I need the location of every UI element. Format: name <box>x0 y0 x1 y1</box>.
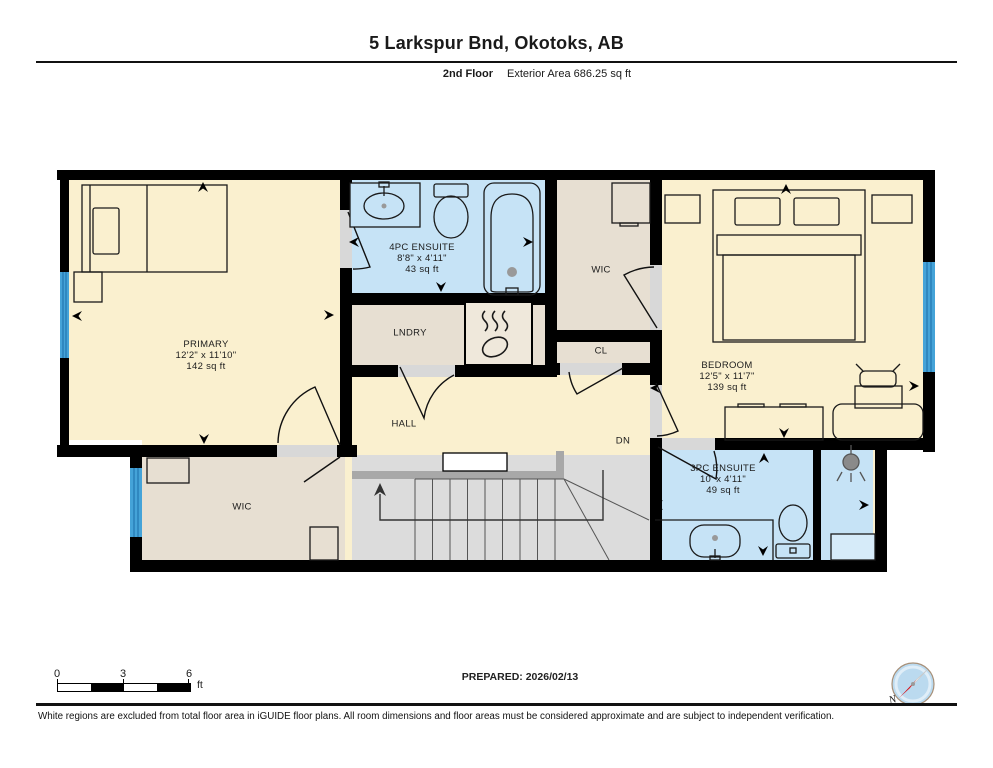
window-primary-left <box>60 272 69 358</box>
room-label-wic-upper: WIC <box>591 266 610 277</box>
room-label-hall: HALL <box>392 420 417 431</box>
footer-divider <box>36 703 957 706</box>
floor-plan-page: 5 Larkspur Bnd, Okotoks, AB 2nd FloorExt… <box>0 0 993 768</box>
disclaimer-text: White regions are excluded from total fl… <box>38 711 834 722</box>
plan-subtitle: 2nd FloorExterior Area 686.25 sq ft <box>443 68 631 80</box>
wic-shelf-icon <box>612 183 650 223</box>
header-divider <box>36 61 957 63</box>
scale-unit: ft <box>197 679 203 691</box>
stairs-down-label: DN <box>616 436 631 447</box>
scale-bar-segments <box>57 683 191 692</box>
prepared-date: PREPARED: 2026/02/13 <box>462 671 579 683</box>
room-label-ensuite-3pc: 3PC ENSUITE 10' x 4'11" 49 sq ft <box>690 464 756 496</box>
laundry-fixtures <box>465 302 532 365</box>
floor-plan-drawing <box>57 168 938 578</box>
floor-plan: PRIMARY 12'2" x 11'10" 142 sq ft 4PC ENS… <box>57 168 938 578</box>
room-label-bedroom: BEDROOM 12'5" x 11'7" 139 sq ft <box>699 361 754 393</box>
scale-tick-6: 6 <box>186 668 192 680</box>
exterior-area-label: Exterior Area 686.25 sq ft <box>507 68 631 80</box>
room-label-primary: PRIMARY 12'2" x 11'10" 142 sq ft <box>176 340 237 372</box>
sink-icon <box>350 182 420 227</box>
bed-single-icon <box>82 185 227 272</box>
window-bedroom-right <box>923 262 935 372</box>
floor-label: 2nd Floor <box>443 68 493 80</box>
room-label-laundry: LNDRY <box>393 329 427 340</box>
page-title: 5 Larkspur Bnd, Okotoks, AB <box>0 33 993 54</box>
window-wic-left <box>130 468 142 537</box>
scale-bar: 0 3 6 ft <box>57 668 227 694</box>
room-label-wic-lower: WIC <box>232 503 251 514</box>
room-label-ensuite-4pc: 4PC ENSUITE 8'8" x 4'11" 43 sq ft <box>389 243 455 275</box>
bed-double-icon <box>713 190 865 342</box>
shower-bench-icon <box>831 534 875 560</box>
room-label-closet: CL <box>595 347 608 358</box>
